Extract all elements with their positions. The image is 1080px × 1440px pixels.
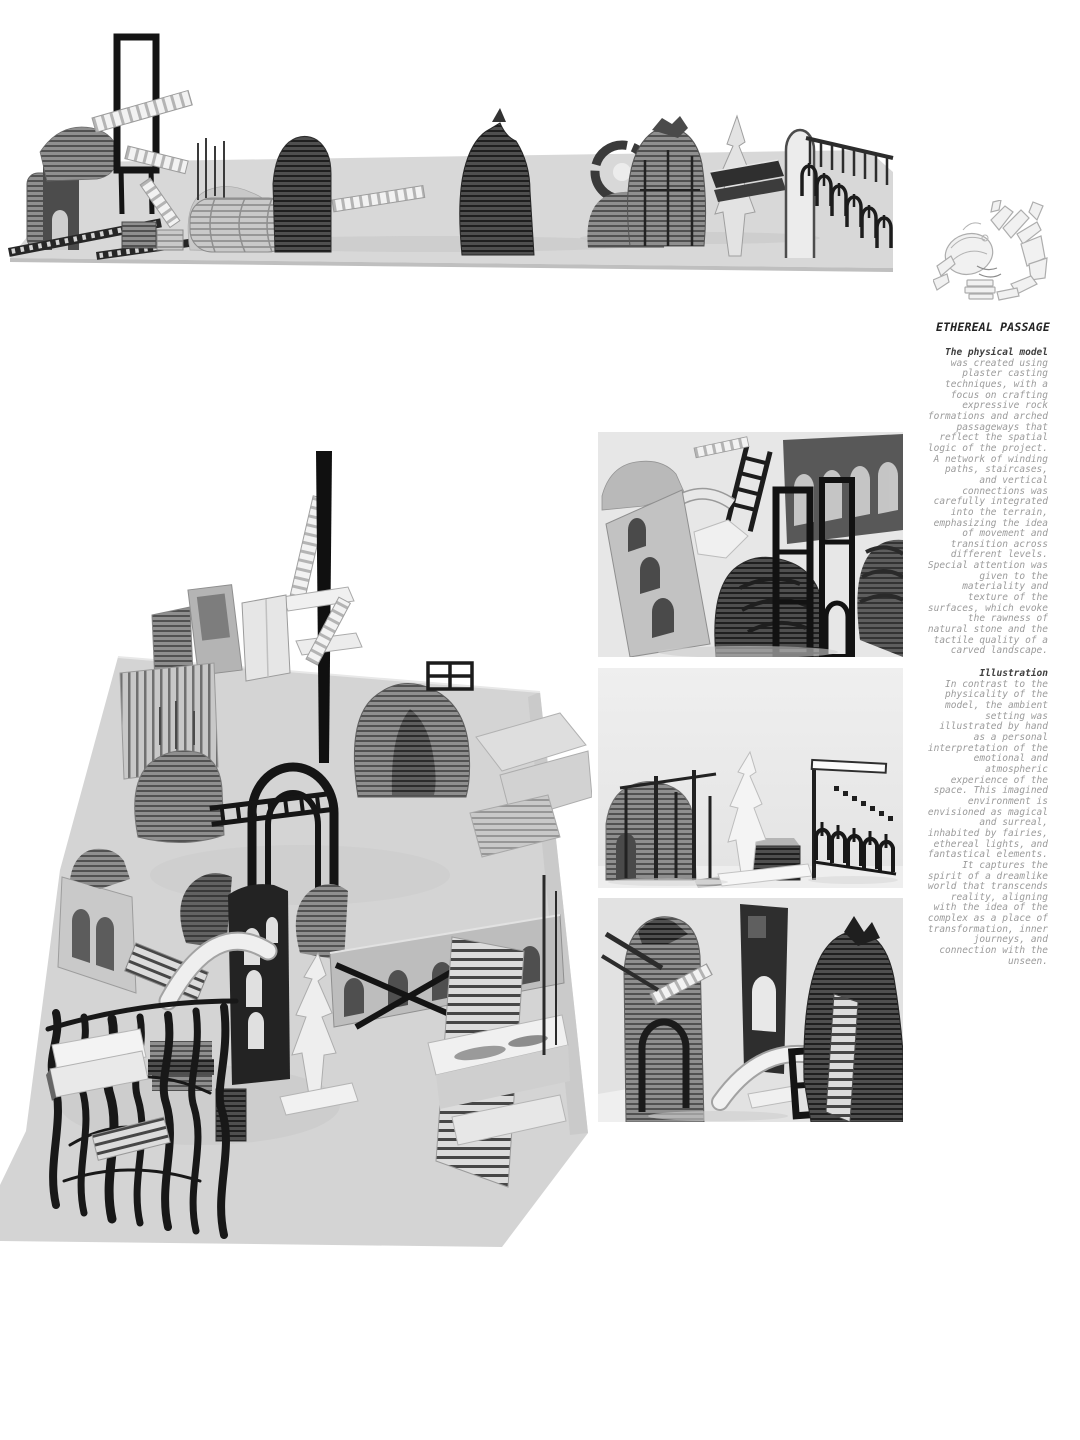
physical-model-paragraph: The physical model was created using pla… (926, 348, 1048, 657)
rock-cluster-sketch-illustration (933, 200, 1050, 312)
model-detail-1-art (598, 432, 903, 657)
physical-model-heading: The physical model (945, 347, 1048, 358)
rock-sketch-art (933, 200, 1050, 312)
portfolio-page: ETHEREAL PASSAGE The physical model was … (0, 0, 1080, 1440)
illustration-paragraph: Illustration In contrast to the physical… (926, 669, 1048, 967)
model-panorama-art (0, 0, 895, 275)
model-detail-photo-2 (598, 668, 903, 888)
model-detail-photo-1 (598, 432, 903, 657)
text-column: ETHEREAL PASSAGE The physical model was … (926, 200, 1050, 967)
model-detail-3-art (598, 898, 903, 1122)
model-perspective-photo (0, 445, 592, 1255)
project-title: ETHEREAL PASSAGE (926, 320, 1050, 334)
model-detail-2-art (598, 668, 903, 888)
model-detail-photo-3 (598, 898, 903, 1122)
model-perspective-art (0, 445, 592, 1255)
model-panorama-photo (0, 0, 895, 275)
physical-model-body: was created using plaster casting techni… (928, 358, 1048, 657)
illustration-body: In contrast to the physicality of the mo… (928, 679, 1048, 967)
